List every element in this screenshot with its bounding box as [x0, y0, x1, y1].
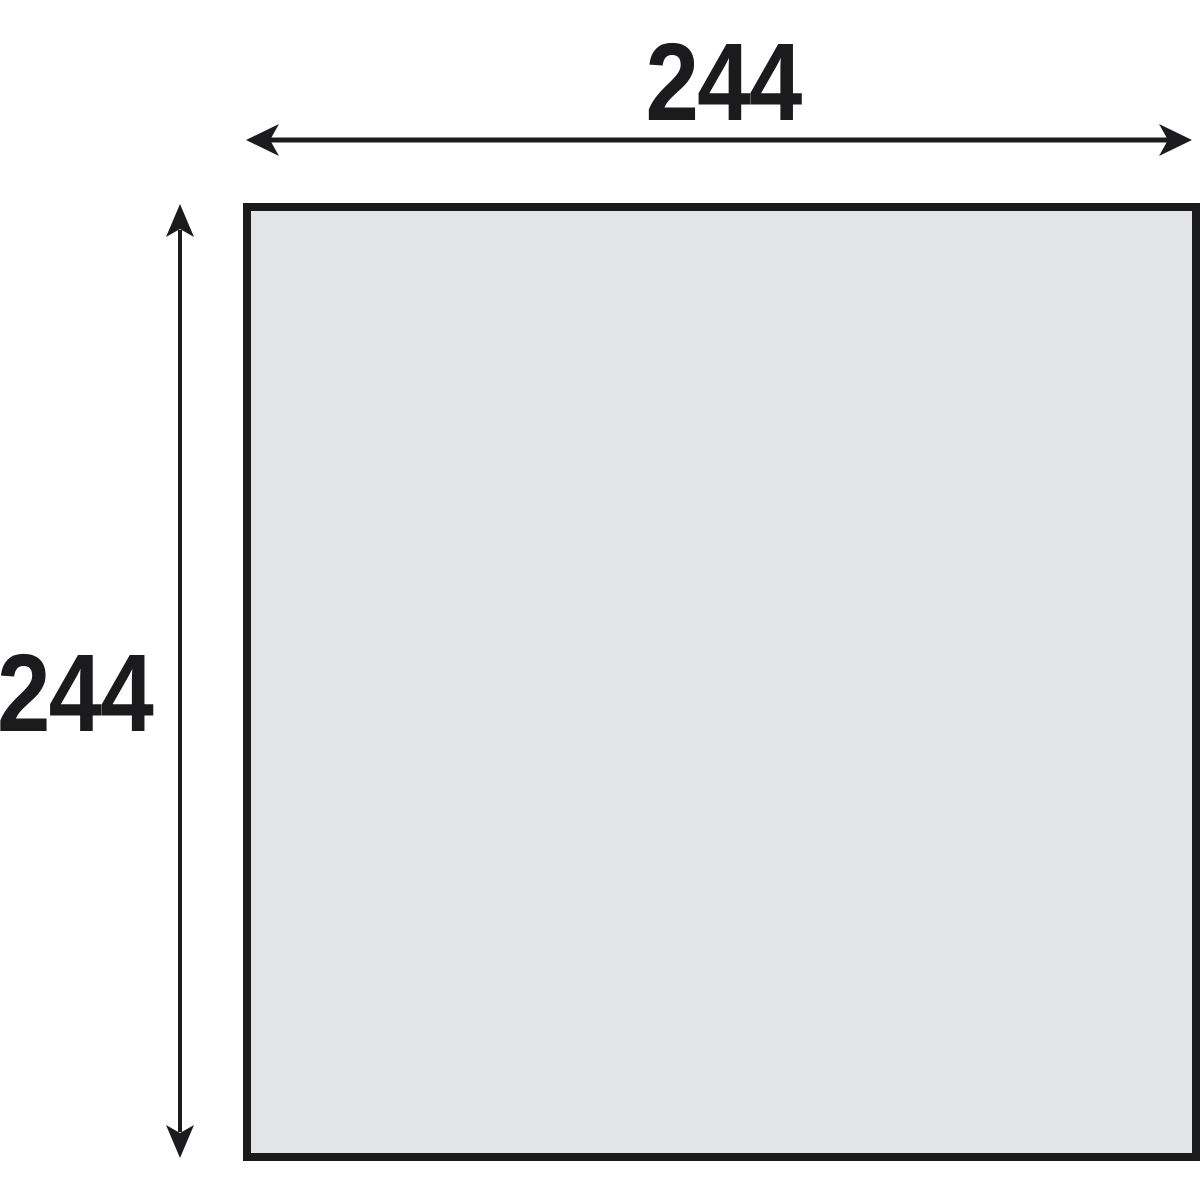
square-panel — [247, 207, 1196, 1157]
horizontal-dimension: 244 — [246, 21, 1192, 156]
diagram-canvas: 244 244 — [0, 0, 1200, 1200]
height-dimension-label: 244 — [0, 632, 154, 755]
dimension-diagram: 244 244 — [0, 0, 1200, 1200]
vertical-dimension: 244 — [0, 204, 194, 1158]
width-dimension-label: 244 — [646, 21, 803, 144]
